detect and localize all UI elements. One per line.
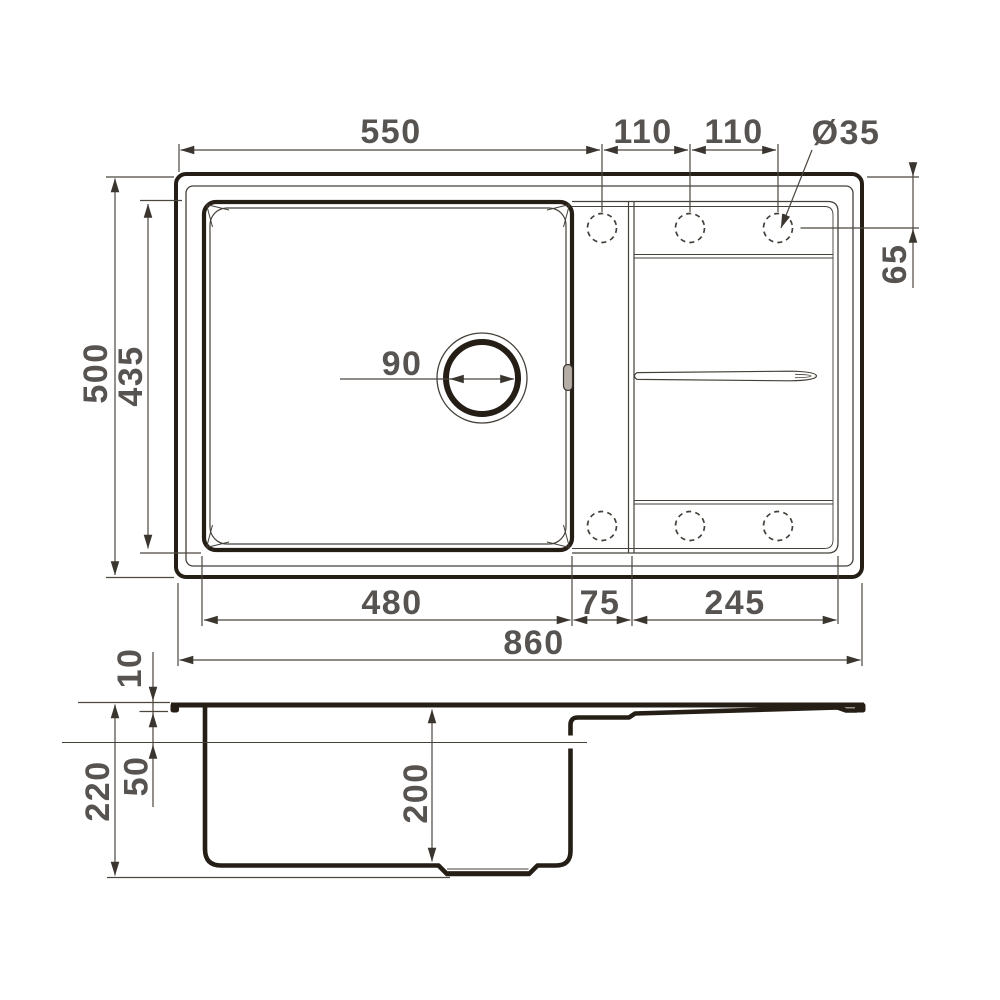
technical-drawing-page: 550 110 110 Ø35 65 500 435 90 480 75 245… [0,0,1000,1000]
dim-220: 220 [79,760,117,821]
dim-10: 10 [111,648,149,689]
dim-435: 435 [112,345,150,406]
dim-500: 500 [77,342,115,403]
dim-245: 245 [704,584,765,622]
dim-550: 550 [360,113,421,151]
dim-90: 90 [382,345,423,383]
dim-110-right: 110 [704,113,763,151]
dim-50: 50 [118,756,156,797]
dim-65: 65 [876,244,914,285]
sink-dimension-drawing: 550 110 110 Ø35 65 500 435 90 480 75 245… [0,0,1000,1000]
dim-hole-diameter: Ø35 [812,114,881,152]
overflow-hole [564,365,573,391]
dim-480: 480 [361,584,422,622]
side-left-lip [171,703,180,713]
dim-200: 200 [397,762,435,823]
dim-860: 860 [503,624,564,662]
dim-75: 75 [580,584,621,622]
drainboard-channel-groove [635,371,817,381]
dim-110-left: 110 [613,113,672,151]
